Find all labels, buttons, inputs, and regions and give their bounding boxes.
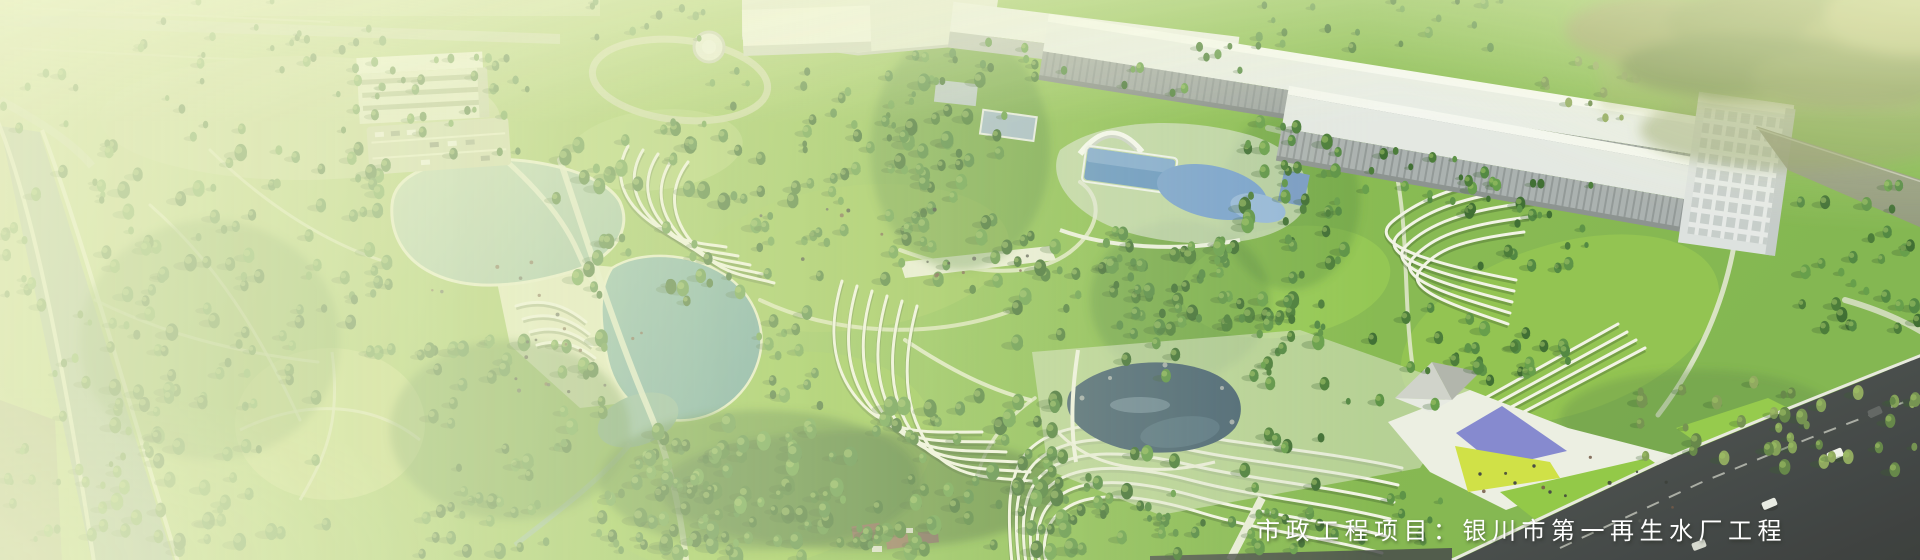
aerial-rendering [0, 0, 1920, 560]
project-caption: 市政工程项目：银川市第一再生水厂工程 [1256, 520, 1787, 544]
hero-banner: 市政工程项目：银川市第一再生水厂工程 [0, 0, 1920, 560]
